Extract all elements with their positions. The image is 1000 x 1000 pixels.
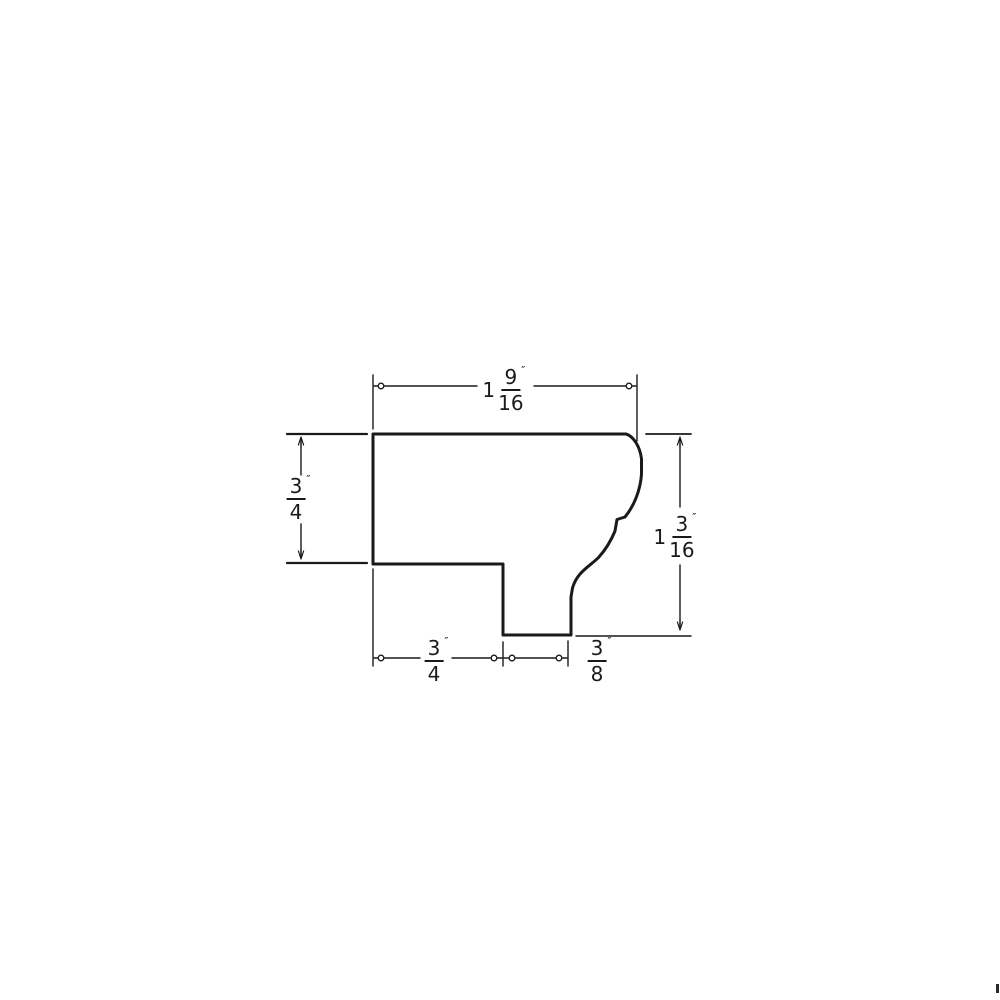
dim-top-fraction: 9″ 16 (498, 367, 523, 413)
dim-left-numerator: 3 (290, 474, 303, 498)
dim-right-whole-number: 1 (653, 527, 666, 547)
dim-label-left-height: 3″ 4 (285, 476, 308, 522)
molding-profile-outline (373, 434, 642, 635)
dim-bottom-widths (373, 569, 568, 666)
dim-top-numerator: 9 (505, 365, 518, 389)
dim-bottom-terminator-2 (491, 655, 497, 661)
dim-left-denominator: 4 (290, 500, 303, 522)
dim-label-bottom-right-width: 3″ 8 (586, 638, 609, 684)
dim-top-terminator-right (626, 383, 632, 389)
dim-bottom-left-inch-mark: ″ (444, 636, 447, 647)
dim-label-bottom-left-width: 3″ 4 (423, 638, 446, 684)
dim-left-arrow-down (298, 549, 303, 559)
technical-drawing (0, 0, 1000, 1000)
scan-artifact-mark (996, 984, 999, 993)
dim-bottom-terminator-1 (378, 655, 384, 661)
dim-right-fraction: 3″ 16 (669, 514, 694, 560)
dim-left-fraction: 3″ 4 (287, 476, 306, 522)
dim-bottom-terminator-3 (509, 655, 515, 661)
dim-bottom-left-denominator: 4 (428, 662, 441, 684)
dim-right-arrow-down (677, 620, 682, 630)
dim-right-inch-mark: ″ (692, 512, 695, 523)
dim-left-arrow-up (298, 437, 303, 447)
dim-right-numerator: 3 (676, 512, 689, 536)
dim-bottom-right-numerator: 3 (591, 636, 604, 660)
dim-label-right-height: 1 3″ 16 (651, 514, 696, 560)
dim-top-terminator-left (378, 383, 384, 389)
dim-bottom-right-inch-mark: ″ (607, 636, 610, 647)
dim-bottom-right-denominator: 8 (591, 662, 604, 684)
dim-top-whole-number: 1 (482, 380, 495, 400)
dim-bottom-right-fraction: 3″ 8 (588, 638, 607, 684)
dim-top-inch-mark: ″ (521, 365, 524, 376)
dim-top-denominator: 16 (498, 391, 523, 413)
dim-bottom-left-fraction: 3″ 4 (425, 638, 444, 684)
dim-left-inch-mark: ″ (306, 474, 309, 485)
dim-right-arrow-up (677, 437, 682, 447)
dim-bottom-terminator-4 (556, 655, 562, 661)
dim-label-top-width: 1 9″ 16 (480, 367, 525, 413)
dim-right-denominator: 16 (669, 538, 694, 560)
dim-bottom-left-numerator: 3 (428, 636, 441, 660)
drawing-canvas: 1 9″ 16 3″ 4 1 3″ 16 3″ 4 3″ 8 (0, 0, 1000, 1000)
